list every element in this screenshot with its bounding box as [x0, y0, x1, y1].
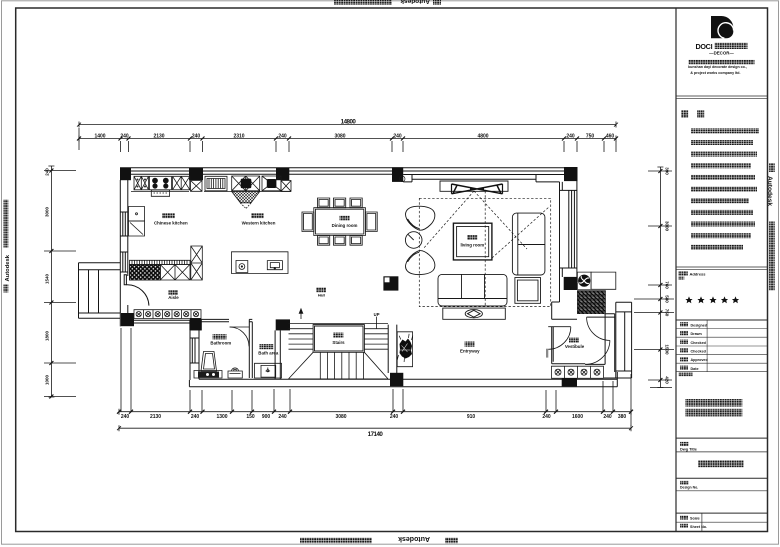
- svg-text:Autodesk: Autodesk: [398, 535, 430, 542]
- svg-text:380: 380: [618, 414, 627, 420]
- svg-text:& project works company ltd.: & project works company ltd.: [690, 71, 740, 75]
- svg-text:3080: 3080: [335, 414, 346, 420]
- svg-text:Approved: Approved: [691, 358, 709, 362]
- svg-text:240: 240: [278, 134, 287, 140]
- svg-text:240: 240: [390, 414, 399, 420]
- svg-text:240: 240: [566, 134, 575, 140]
- svg-text:Chinese kitchen: Chinese kitchen: [154, 220, 188, 225]
- svg-text:910: 910: [467, 414, 476, 420]
- svg-text:Hall: Hall: [318, 294, 325, 298]
- svg-text:240: 240: [120, 134, 129, 140]
- svg-text:3000: 3000: [665, 221, 670, 232]
- svg-text:Checked: Checked: [691, 350, 707, 354]
- svg-text:Drawn: Drawn: [691, 332, 703, 336]
- svg-text:Checked: Checked: [691, 341, 707, 345]
- svg-text:1540: 1540: [45, 273, 50, 284]
- svg-text:240: 240: [192, 134, 201, 140]
- svg-text:580: 580: [665, 295, 670, 303]
- svg-text:Designed: Designed: [691, 323, 708, 327]
- svg-text:420: 420: [665, 376, 670, 384]
- svg-text:Autodesk: Autodesk: [766, 176, 773, 206]
- svg-text:2130: 2130: [150, 414, 161, 420]
- svg-text:240: 240: [191, 414, 200, 420]
- svg-text:240: 240: [45, 168, 50, 176]
- svg-text:3080: 3080: [334, 134, 345, 140]
- svg-text:750: 750: [665, 309, 670, 317]
- svg-text:Date: Date: [691, 367, 699, 371]
- svg-text:Design No.: Design No.: [680, 486, 698, 490]
- svg-text:1800: 1800: [45, 330, 50, 341]
- svg-text:Dining room: Dining room: [332, 223, 358, 228]
- svg-text:1300: 1300: [216, 414, 227, 420]
- svg-text:Stairs: Stairs: [332, 340, 345, 345]
- svg-text:900: 900: [262, 414, 271, 420]
- svg-text:1000: 1000: [45, 374, 50, 385]
- svg-text:240: 240: [542, 414, 551, 420]
- svg-text:760: 760: [665, 281, 670, 289]
- svg-text:240: 240: [603, 414, 612, 420]
- svg-text:750: 750: [586, 134, 595, 140]
- svg-text:2310: 2310: [233, 134, 244, 140]
- svg-text:150: 150: [246, 414, 255, 420]
- svg-text:460: 460: [606, 134, 615, 140]
- svg-text:240: 240: [278, 414, 287, 420]
- svg-text:14800: 14800: [341, 119, 357, 126]
- svg-text:living room: living room: [460, 242, 484, 247]
- svg-text:kunshan dayi decorate design c: kunshan dayi decorate design co.,: [688, 65, 747, 69]
- svg-text:240: 240: [393, 134, 402, 140]
- svg-text:UP: UP: [374, 312, 380, 317]
- svg-text:1400: 1400: [94, 134, 105, 140]
- svg-text:4800: 4800: [477, 134, 488, 140]
- svg-text:Dwg Title: Dwg Title: [680, 447, 697, 451]
- svg-text:1500: 1500: [665, 344, 670, 355]
- svg-text:Entryway: Entryway: [460, 349, 480, 354]
- svg-text:Sheet No.: Sheet No.: [690, 525, 707, 529]
- svg-text:Western kitchen: Western kitchen: [242, 220, 276, 225]
- svg-text:390: 390: [665, 167, 670, 175]
- svg-text:1600: 1600: [572, 414, 583, 420]
- svg-text:Scale: Scale: [690, 517, 700, 521]
- svg-text:2130: 2130: [153, 134, 164, 140]
- svg-text:Address: Address: [690, 272, 707, 277]
- svg-text:Aisle: Aisle: [168, 295, 179, 300]
- svg-text:Bath area: Bath area: [258, 350, 279, 355]
- svg-text:3000: 3000: [45, 206, 50, 217]
- svg-text:Bathroom: Bathroom: [210, 341, 231, 346]
- svg-text:Vestibule: Vestibule: [565, 344, 585, 349]
- svg-text:Autodesk: Autodesk: [5, 254, 11, 281]
- svg-text:240: 240: [121, 414, 130, 420]
- svg-text:17140: 17140: [368, 431, 384, 438]
- svg-text:Autodesk: Autodesk: [400, 0, 430, 5]
- svg-text:—DECOR—: —DECOR—: [709, 50, 734, 55]
